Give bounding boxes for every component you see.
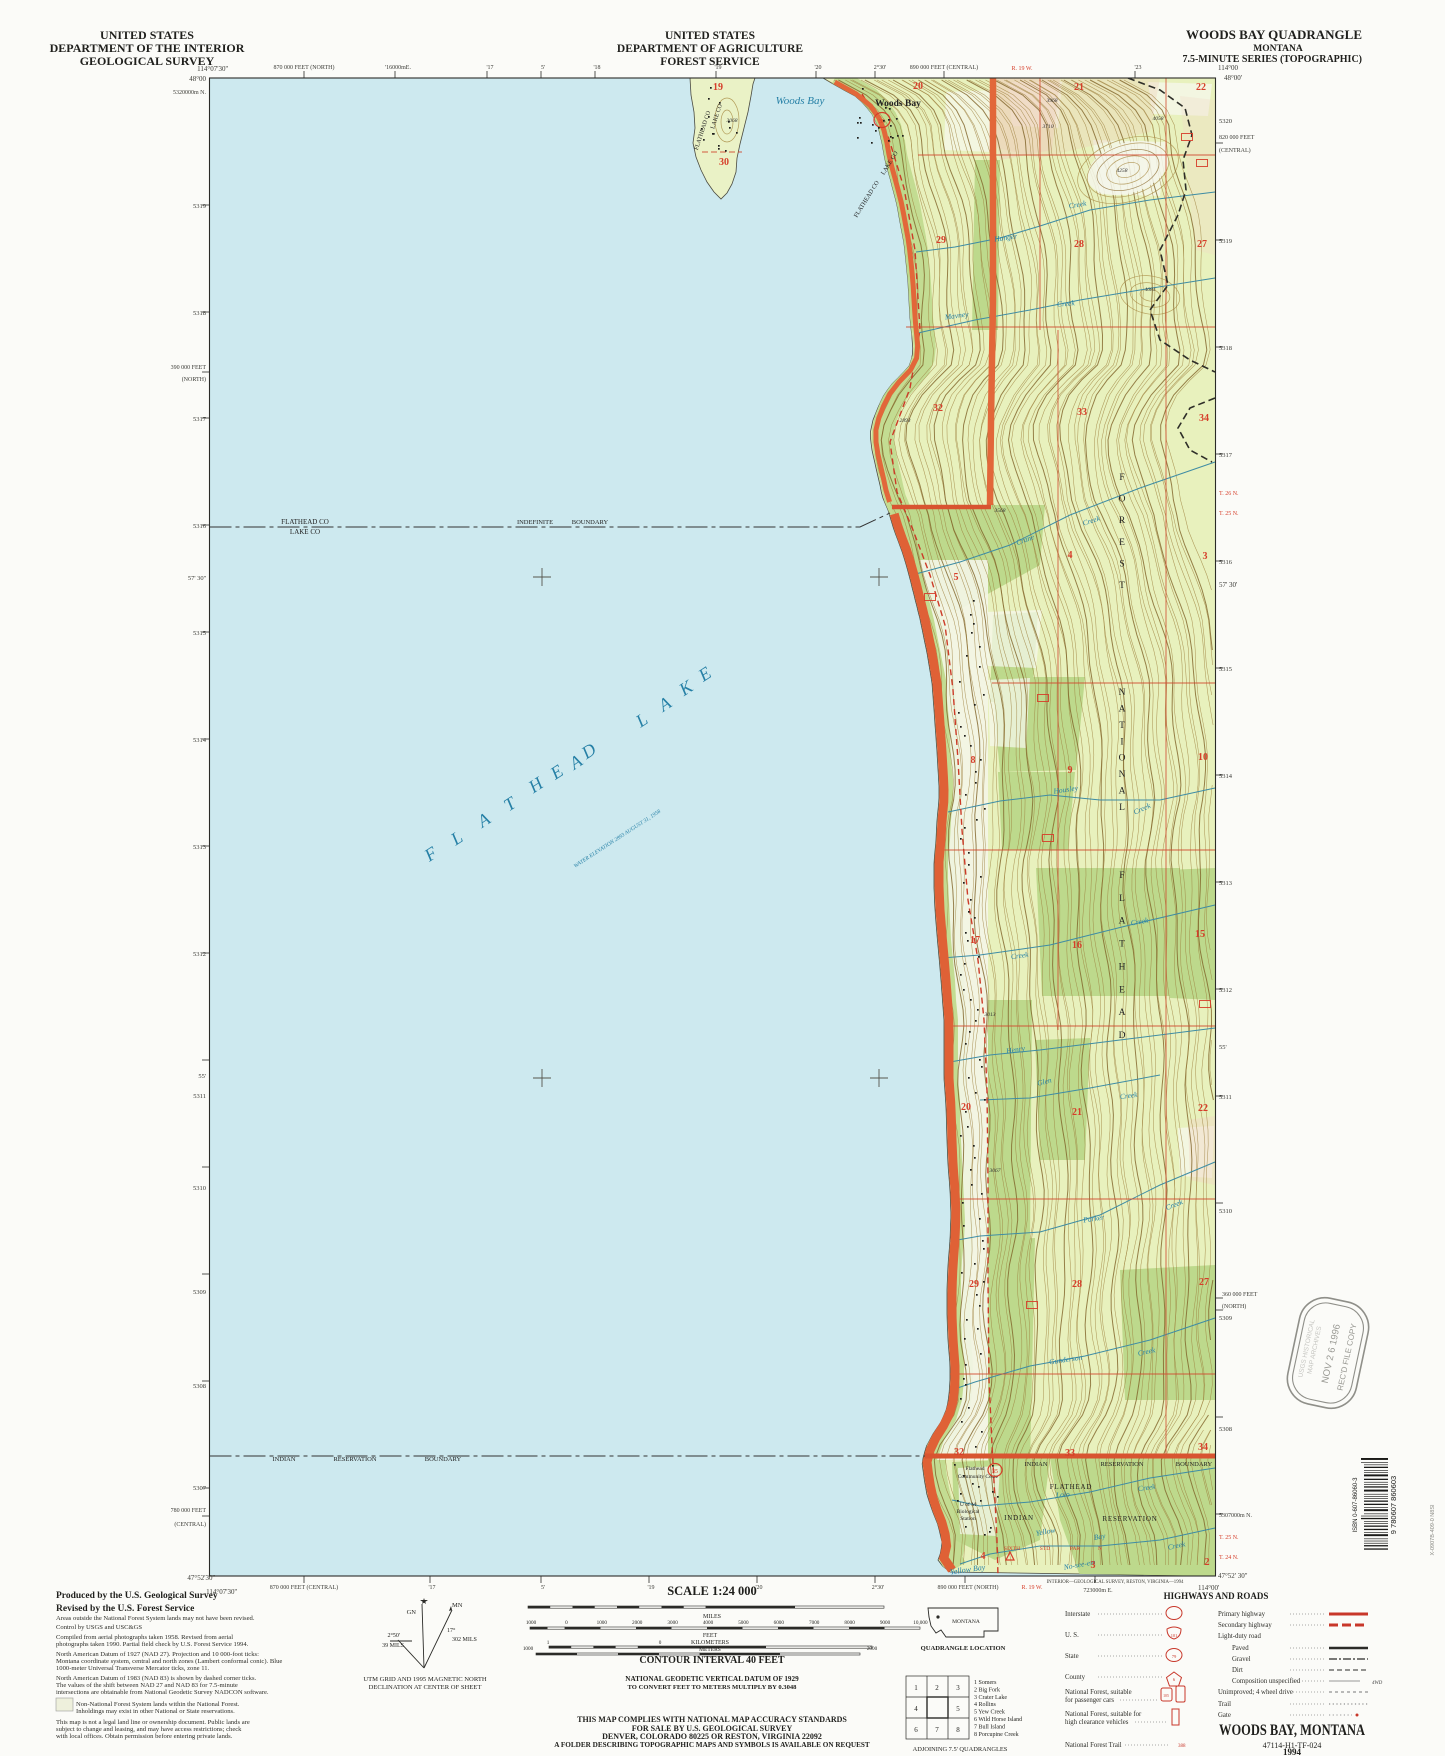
svg-text:3 Crater Lake: 3 Crater Lake <box>974 1695 1007 1701</box>
svg-text:Interstate: Interstate <box>1065 1611 1090 1618</box>
svg-text:6000: 6000 <box>774 1620 785 1626</box>
svg-text:3013: 3013 <box>984 1012 996 1018</box>
svg-text:E: E <box>1119 538 1125 548</box>
svg-text:O: O <box>1119 495 1126 505</box>
svg-text:28: 28 <box>1074 239 1084 250</box>
svg-text:E: E <box>1119 985 1125 995</box>
svg-text:114°00: 114°00 <box>1218 64 1239 72</box>
svg-text:3568: 3568 <box>994 508 1006 514</box>
svg-text:KILOMETERS: KILOMETERS <box>691 1640 729 1646</box>
svg-text:'17: '17 <box>428 1585 435 1591</box>
svg-text:T: T <box>1119 721 1125 731</box>
svg-text:ISBN 0-607-86060-3: ISBN 0-607-86060-3 <box>1353 1477 1359 1533</box>
svg-text:Trail: Trail <box>1218 1701 1231 1708</box>
svg-text:55': 55' <box>198 1073 206 1080</box>
svg-text:4: 4 <box>981 1551 986 1562</box>
svg-text:5316: 5316 <box>1219 559 1233 566</box>
svg-text:2: 2 <box>935 1684 939 1692</box>
svg-text:(NORTH): (NORTH) <box>1222 1303 1246 1310</box>
svg-text:MONTANA: MONTANA <box>952 1619 980 1625</box>
svg-text:3968: 3968 <box>1046 98 1058 104</box>
svg-text:7: 7 <box>935 1726 939 1734</box>
svg-text:6 Wild Horse Island: 6 Wild Horse Island <box>974 1717 1022 1723</box>
svg-text:PAR: PAR <box>1070 1546 1081 1552</box>
svg-text:17°: 17° <box>447 1627 456 1634</box>
svg-text:X-0907B-409-0 N8SI: X-0907B-409-0 N8SI <box>1430 1504 1436 1556</box>
svg-text:5317: 5317 <box>193 416 207 423</box>
svg-text:North American Datum of 1927 (: North American Datum of 1927 (NAD 27). P… <box>56 1651 259 1658</box>
svg-text:15: 15 <box>1195 929 1205 940</box>
svg-text:LAKE CO: LAKE CO <box>290 528 320 536</box>
svg-text:National Forest, suitable: National Forest, suitable <box>1065 1689 1132 1696</box>
svg-text:5318: 5318 <box>193 310 206 317</box>
svg-text:57' 30': 57' 30' <box>1219 581 1237 589</box>
svg-text:GEOLOGICAL SURVEY: GEOLOGICAL SURVEY <box>80 54 215 68</box>
svg-text:for passenger cars: for passenger cars <box>1065 1697 1114 1704</box>
svg-text:101: 101 <box>1171 1633 1178 1638</box>
svg-text:10,000: 10,000 <box>913 1620 928 1626</box>
svg-text:1 Somers: 1 Somers <box>974 1680 997 1686</box>
svg-text:DEPARTMENT OF THE INTERIOR: DEPARTMENT OF THE INTERIOR <box>50 41 245 55</box>
svg-text:subject to change and leasing,: subject to change and leasing, and may h… <box>56 1726 242 1733</box>
svg-text:A: A <box>1119 1008 1126 1018</box>
svg-text:DENVER, COLORADO 80225 OR REST: DENVER, COLORADO 80225 OR RESTON, VIRGIN… <box>602 1732 822 1741</box>
svg-text:9000: 9000 <box>880 1620 891 1626</box>
svg-text:55': 55' <box>1219 1044 1227 1051</box>
svg-text:5317: 5317 <box>1219 452 1233 459</box>
svg-text:390 000 FEET: 390 000 FEET <box>171 365 207 371</box>
svg-text:(CENTRAL): (CENTRAL) <box>1219 147 1251 154</box>
svg-text:10: 10 <box>1198 752 1208 763</box>
svg-text:RESERVATION: RESERVATION <box>1100 1461 1143 1468</box>
svg-text:NATIONAL GEODETIC VERTICAL DAT: NATIONAL GEODETIC VERTICAL DATUM OF 1929 <box>625 1675 799 1683</box>
svg-text:L: L <box>1119 894 1125 904</box>
svg-text:5319: 5319 <box>1219 238 1232 245</box>
svg-text:48°00': 48°00' <box>1224 74 1242 82</box>
svg-text:5318: 5318 <box>1219 345 1232 352</box>
svg-text:3710: 3710 <box>1042 124 1054 130</box>
svg-text:ADJOINING 7.5' QUADRANGLES: ADJOINING 7.5' QUADRANGLES <box>913 1746 1008 1753</box>
svg-text:O: O <box>1119 754 1126 764</box>
svg-text:33: 33 <box>1077 407 1087 418</box>
svg-text:T. 24 N.: T. 24 N. <box>1219 1555 1239 1561</box>
svg-text:National Forest Trail: National Forest Trail <box>1065 1742 1122 1749</box>
svg-text:5': 5' <box>541 1585 545 1591</box>
svg-text:5312: 5312 <box>193 951 206 958</box>
svg-text:N: N <box>1098 1546 1102 1552</box>
svg-text:UNITED STATES: UNITED STATES <box>100 28 194 42</box>
svg-text:FEET: FEET <box>703 1633 718 1639</box>
svg-text:1: 1 <box>547 1640 550 1646</box>
svg-text:U. S.: U. S. <box>1065 1632 1079 1639</box>
svg-text:INDIAN: INDIAN <box>1024 1461 1047 1468</box>
svg-text:Revised by the U.S. Forest Ser: Revised by the U.S. Forest Service <box>56 1604 194 1614</box>
svg-text:5: 5 <box>954 572 959 583</box>
svg-text:intersections are obtainable f: intersections are obtainable from Nation… <box>56 1689 269 1696</box>
svg-text:TO CONVERT FEET TO METERS MULT: TO CONVERT FEET TO METERS MULTIPLY BY 0.… <box>628 1684 798 1691</box>
svg-text:4: 4 <box>914 1705 918 1713</box>
svg-text:N: N <box>1119 688 1126 698</box>
svg-text:(NORTH): (NORTH) <box>182 376 206 383</box>
svg-text:5308: 5308 <box>1219 1426 1232 1433</box>
svg-text:Station: Station <box>960 1516 976 1522</box>
svg-text:2: 2 <box>1205 1557 1210 1568</box>
svg-text:F: F <box>1119 473 1124 483</box>
svg-text:35: 35 <box>879 119 885 125</box>
svg-text:T: T <box>1119 940 1125 950</box>
svg-text:5315: 5315 <box>193 630 206 637</box>
svg-text:1: 1 <box>914 1684 918 1692</box>
svg-text:30: 30 <box>719 157 729 168</box>
svg-text:57' 30'': 57' 30'' <box>188 575 206 582</box>
svg-text:9 780607 860603: 9 780607 860603 <box>1389 1476 1398 1534</box>
svg-text:L: L <box>1119 803 1125 813</box>
svg-text:32: 32 <box>933 403 943 414</box>
svg-text:FOREST SERVICE: FOREST SERVICE <box>660 56 760 68</box>
svg-text:4000: 4000 <box>703 1620 714 1626</box>
svg-text:5: 5 <box>956 1705 960 1713</box>
svg-text:(CENTRAL): (CENTRAL) <box>174 1521 206 1528</box>
svg-text:UTM GRID AND 1995 MAGNETIC NOR: UTM GRID AND 1995 MAGNETIC NORTH <box>363 1676 486 1683</box>
svg-text:29: 29 <box>936 235 946 246</box>
svg-text:MONTANA: MONTANA <box>1253 44 1303 54</box>
svg-text:T. 25 N.: T. 25 N. <box>1219 1535 1239 1541</box>
svg-text:0: 0 <box>659 1640 662 1646</box>
svg-text:SIXTH: SIXTH <box>1004 1546 1020 1552</box>
svg-text:Secondary highway: Secondary highway <box>1218 1622 1272 1629</box>
svg-text:R: R <box>1119 516 1126 526</box>
svg-text:5311: 5311 <box>1219 1094 1232 1101</box>
svg-text:BOUNDARY: BOUNDARY <box>1176 1461 1213 1468</box>
svg-text:Composition unspecified: Composition unspecified <box>1232 1678 1301 1685</box>
svg-text:4: 4 <box>1068 550 1073 561</box>
svg-text:22: 22 <box>1196 82 1206 93</box>
svg-text:Flathead: Flathead <box>966 1466 985 1472</box>
svg-text:20: 20 <box>913 81 923 92</box>
svg-text:723000m E.: 723000m E. <box>1083 1588 1113 1594</box>
svg-text:1000-meter Universal Transvers: 1000-meter Universal Transverse Mercator… <box>56 1665 210 1672</box>
svg-text:5310: 5310 <box>1219 1208 1232 1215</box>
svg-text:Light-duty road: Light-duty road <box>1218 1633 1261 1640</box>
svg-text:T. 26 N.: T. 26 N. <box>1219 491 1239 497</box>
svg-text:H: H <box>1119 962 1126 972</box>
svg-text:21: 21 <box>1074 82 1084 93</box>
svg-text:INTERIOR—GEOLOGICAL SURVEY, RE: INTERIOR—GEOLOGICAL SURVEY, RESTON, VIRG… <box>1047 1580 1184 1585</box>
svg-text:2 Big Fork: 2 Big Fork <box>974 1687 1000 1693</box>
svg-text:5000: 5000 <box>738 1620 749 1626</box>
svg-text:5309: 5309 <box>193 1289 206 1296</box>
svg-text:105: 105 <box>1163 1694 1169 1698</box>
svg-text:7.5-MINUTE SERIES (TOPOGRAPHIC: 7.5-MINUTE SERIES (TOPOGRAPHIC) <box>1182 54 1362 65</box>
svg-text:Control by USGS and USC&GS: Control by USGS and USC&GS <box>56 1624 142 1631</box>
svg-text:5311: 5311 <box>193 1093 206 1100</box>
svg-text:5308: 5308 <box>193 1383 206 1390</box>
svg-text:A: A <box>1119 917 1126 927</box>
svg-text:North American Datum of 1983 (: North American Datum of 1983 (NAD 83) is… <box>56 1675 257 1682</box>
svg-text:8: 8 <box>956 1726 960 1734</box>
svg-text:U of M: U of M <box>960 1501 976 1508</box>
svg-text:Woods Bay: Woods Bay <box>776 95 825 107</box>
svg-text:3000: 3000 <box>667 1620 678 1626</box>
svg-text:6: 6 <box>914 1726 918 1734</box>
svg-text:3: 3 <box>1203 551 1208 562</box>
svg-text:890 000 FEET (CENTRAL): 890 000 FEET (CENTRAL) <box>910 64 978 71</box>
svg-text:D: D <box>1119 1031 1126 1041</box>
svg-text:GN: GN <box>407 1609 417 1616</box>
svg-text:HIGHWAYS AND ROADS: HIGHWAYS AND ROADS <box>1164 1591 1269 1601</box>
svg-text:Gravel: Gravel <box>1232 1656 1251 1663</box>
svg-text:This map is not a legal land l: This map is not a legal land line or own… <box>56 1719 250 1726</box>
svg-text:'18: '18 <box>593 65 600 71</box>
svg-text:22: 22 <box>1198 1103 1208 1114</box>
svg-text:28: 28 <box>1072 1279 1082 1290</box>
svg-text:5314: 5314 <box>193 737 207 744</box>
svg-text:Inholdings may exist in other: Inholdings may exist in other National o… <box>76 1708 235 1715</box>
svg-text:5 Yew Creek: 5 Yew Creek <box>974 1710 1005 1716</box>
svg-text:DECLINATION AT CENTER OF SHEET: DECLINATION AT CENTER OF SHEET <box>369 1684 482 1691</box>
svg-text:photographs taken 1990. Parti: photographs taken 1990. Partial field ch… <box>56 1641 249 1648</box>
svg-text:9: 9 <box>1068 765 1073 776</box>
svg-text:890 000 FEET (NORTH): 890 000 FEET (NORTH) <box>937 1584 998 1591</box>
svg-text:with local offices. Obtain pe: with local offices. Obtain permission be… <box>56 1733 233 1740</box>
svg-text:5320: 5320 <box>1219 118 1232 125</box>
svg-text:WOODS BAY, MONTANA: WOODS BAY, MONTANA <box>1219 1722 1366 1739</box>
svg-text:Produced by the U.S. Geologica: Produced by the U.S. Geological Survey <box>56 1591 218 1601</box>
svg-text:4258: 4258 <box>1117 167 1128 174</box>
svg-text:8 Porcupine Creek: 8 Porcupine Creek <box>974 1732 1019 1738</box>
svg-text:Gate: Gate <box>1218 1712 1231 1719</box>
svg-text:2°30': 2°30' <box>872 1584 884 1591</box>
svg-text:360 000 FEET: 360 000 FEET <box>1222 1292 1258 1298</box>
svg-text:Montana coordinate system, cen: Montana coordinate system, central and n… <box>56 1658 282 1665</box>
svg-text:Woods Bay: Woods Bay <box>875 99 921 109</box>
svg-text:'20: '20 <box>814 65 821 71</box>
svg-text:5319: 5319 <box>193 203 206 210</box>
svg-text:5309: 5309 <box>1219 1315 1232 1322</box>
svg-text:Dirt: Dirt <box>1232 1667 1243 1674</box>
svg-text:Non-National Forest System lan: Non-National Forest System lands within … <box>76 1701 240 1708</box>
svg-text:2°30': 2°30' <box>874 64 886 71</box>
svg-text:INDIAN: INDIAN <box>272 1456 295 1463</box>
svg-text:BOUNDARY: BOUNDARY <box>425 1456 462 1463</box>
svg-text:1000: 1000 <box>523 1646 534 1652</box>
svg-text:A FOLDER DESCRIBING TOPOGRAPHI: A FOLDER DESCRIBING TOPOGRAPHIC MAPS AND… <box>554 1741 870 1749</box>
svg-text:79: 79 <box>1172 1654 1177 1659</box>
svg-text:DEPARTMENT OF AGRICULTURE: DEPARTMENT OF AGRICULTURE <box>617 43 804 55</box>
svg-text:S: S <box>1119 559 1124 569</box>
svg-text:5320000m N.: 5320000m N. <box>173 90 207 96</box>
svg-text:27: 27 <box>1197 239 1207 250</box>
svg-text:34: 34 <box>1198 1442 1208 1453</box>
svg-text:870 000 FEET (NORTH): 870 000 FEET (NORTH) <box>273 64 334 71</box>
svg-text:4WD: 4WD <box>1372 1681 1383 1686</box>
svg-text:5313: 5313 <box>193 844 206 851</box>
svg-text:2000: 2000 <box>632 1620 643 1626</box>
svg-text:29: 29 <box>969 1279 979 1290</box>
svg-text:T: T <box>1119 581 1125 591</box>
svg-text:Compiled from aerial photograp: Compiled from aerial photographs taken 1… <box>56 1634 233 1641</box>
svg-text:I: I <box>1120 737 1123 747</box>
svg-text:Biological: Biological <box>957 1509 980 1515</box>
svg-text:R. 19 W.: R. 19 W. <box>1011 66 1033 72</box>
svg-text:SCALE 1:24 000: SCALE 1:24 000 <box>667 1584 757 1598</box>
svg-text:5312: 5312 <box>1219 987 1232 994</box>
svg-text:'19: '19 <box>647 1585 654 1591</box>
svg-text:0: 0 <box>565 1620 568 1626</box>
svg-text:32: 32 <box>954 1447 964 1458</box>
svg-text:UNITED STATES: UNITED STATES <box>665 30 755 42</box>
svg-text:5310: 5310 <box>193 1185 206 1192</box>
svg-text:302 MILS: 302 MILS <box>452 1637 477 1643</box>
svg-text:N: N <box>1119 770 1126 780</box>
svg-text:2893: 2893 <box>900 418 911 424</box>
svg-text:Areas outside the National For: Areas outside the National Forest System… <box>56 1615 255 1622</box>
svg-text:BOUNDARY: BOUNDARY <box>572 519 609 526</box>
svg-text:5307: 5307 <box>193 1485 207 1492</box>
svg-text:Unimproved; 4 wheel drive: Unimproved; 4 wheel drive <box>1218 1689 1293 1696</box>
svg-text:4681: 4681 <box>1145 286 1156 293</box>
svg-text:'16000mE.: '16000mE. <box>385 65 411 71</box>
svg-text:39 MILS: 39 MILS <box>382 1643 404 1649</box>
svg-text:METERS: METERS <box>699 1647 721 1653</box>
svg-text:3: 3 <box>1091 1560 1096 1571</box>
svg-text:8000: 8000 <box>844 1620 855 1626</box>
svg-text:388: 388 <box>1178 1744 1186 1749</box>
svg-text:7 Bull Island: 7 Bull Island <box>974 1724 1005 1730</box>
svg-text:INDEFINITE: INDEFINITE <box>517 519 553 526</box>
svg-text:3067: 3067 <box>989 1168 1001 1174</box>
svg-text:48°00: 48°00 <box>189 75 206 83</box>
svg-text:2000: 2000 <box>867 1646 878 1652</box>
svg-text:RESERVATION: RESERVATION <box>333 1456 376 1463</box>
svg-text:State: State <box>1065 1653 1079 1660</box>
svg-text:F: F <box>1119 871 1124 881</box>
svg-text:21: 21 <box>1072 1107 1082 1118</box>
svg-text:The values of the shift betwee: The values of the shift between NAD 27 a… <box>56 1682 238 1689</box>
svg-text:R. 19 W.: R. 19 W. <box>1021 1585 1043 1591</box>
svg-text:T. 25 N.: T. 25 N. <box>1219 511 1239 517</box>
svg-text:5307000m N.: 5307000m N. <box>1219 1513 1253 1519</box>
svg-text:47°52'30'': 47°52'30'' <box>187 1574 215 1582</box>
svg-text:A: A <box>1119 787 1126 797</box>
svg-text:820 000 FEET: 820 000 FEET <box>1219 135 1255 141</box>
svg-text:QUADRANGLE LOCATION: QUADRANGLE LOCATION <box>921 1645 1006 1652</box>
svg-text:National Forest, suitable for: National Forest, suitable for <box>1065 1711 1142 1718</box>
svg-text:3068: 3068 <box>726 118 738 124</box>
svg-text:high clearance vehicles: high clearance vehicles <box>1065 1719 1129 1726</box>
svg-text:1994: 1994 <box>1283 1747 1302 1756</box>
svg-text:47°52' 30'': 47°52' 30'' <box>1218 1572 1247 1580</box>
svg-text:Paved: Paved <box>1232 1645 1249 1652</box>
svg-text:4058: 4058 <box>1153 115 1164 122</box>
svg-text:MN: MN <box>452 1602 463 1609</box>
svg-text:THIS MAP COMPLIES WITH NATIONA: THIS MAP COMPLIES WITH NATIONAL MAP ACCU… <box>577 1715 847 1724</box>
svg-text:27: 27 <box>1199 1277 1209 1288</box>
svg-text:5316: 5316 <box>193 523 207 530</box>
svg-text:33: 33 <box>1065 1448 1075 1459</box>
svg-text:Lolo: Lolo <box>1055 1489 1071 1499</box>
svg-text:Creek: Creek <box>1057 298 1076 309</box>
svg-text:17: 17 <box>970 935 980 946</box>
svg-text:4 Rollins: 4 Rollins <box>974 1702 997 1708</box>
svg-text:INDIAN: INDIAN <box>1004 1514 1034 1522</box>
svg-text:WOODS BAY QUADRANGLE: WOODS BAY QUADRANGLE <box>1186 27 1362 42</box>
svg-text:5313: 5313 <box>1219 880 1232 887</box>
svg-text:870 000 FEET (CENTRAL): 870 000 FEET (CENTRAL) <box>270 1584 338 1591</box>
svg-text:8: 8 <box>971 755 976 766</box>
svg-text:1000: 1000 <box>597 1620 608 1626</box>
svg-text:34: 34 <box>1199 413 1209 424</box>
svg-text:FLATHEAD CO: FLATHEAD CO <box>281 518 329 526</box>
svg-text:'23: '23 <box>1134 65 1141 71</box>
svg-text:16: 16 <box>1072 940 1082 951</box>
svg-text:Primary highway: Primary highway <box>1218 1611 1266 1618</box>
svg-text:780 000 FEET: 780 000 FEET <box>171 1508 207 1514</box>
svg-text:5': 5' <box>541 65 545 71</box>
svg-text:1000: 1000 <box>526 1620 537 1626</box>
svg-text:CONTOUR INTERVAL 40 FEET: CONTOUR INTERVAL 40 FEET <box>639 1655 784 1666</box>
svg-text:3: 3 <box>956 1684 960 1692</box>
svg-text:County: County <box>1065 1674 1086 1681</box>
svg-text:5315: 5315 <box>1219 666 1232 673</box>
svg-text:2°50': 2°50' <box>388 1632 400 1639</box>
svg-text:5314: 5314 <box>1219 773 1233 780</box>
svg-text:'17: '17 <box>486 65 493 71</box>
svg-text:A: A <box>1119 704 1126 714</box>
svg-text:STD: STD <box>1040 1546 1050 1552</box>
svg-text:RESERVATION: RESERVATION <box>1102 1515 1157 1523</box>
svg-text:7000: 7000 <box>809 1620 820 1626</box>
svg-text:35: 35 <box>992 1469 998 1475</box>
svg-text:19: 19 <box>713 82 723 93</box>
